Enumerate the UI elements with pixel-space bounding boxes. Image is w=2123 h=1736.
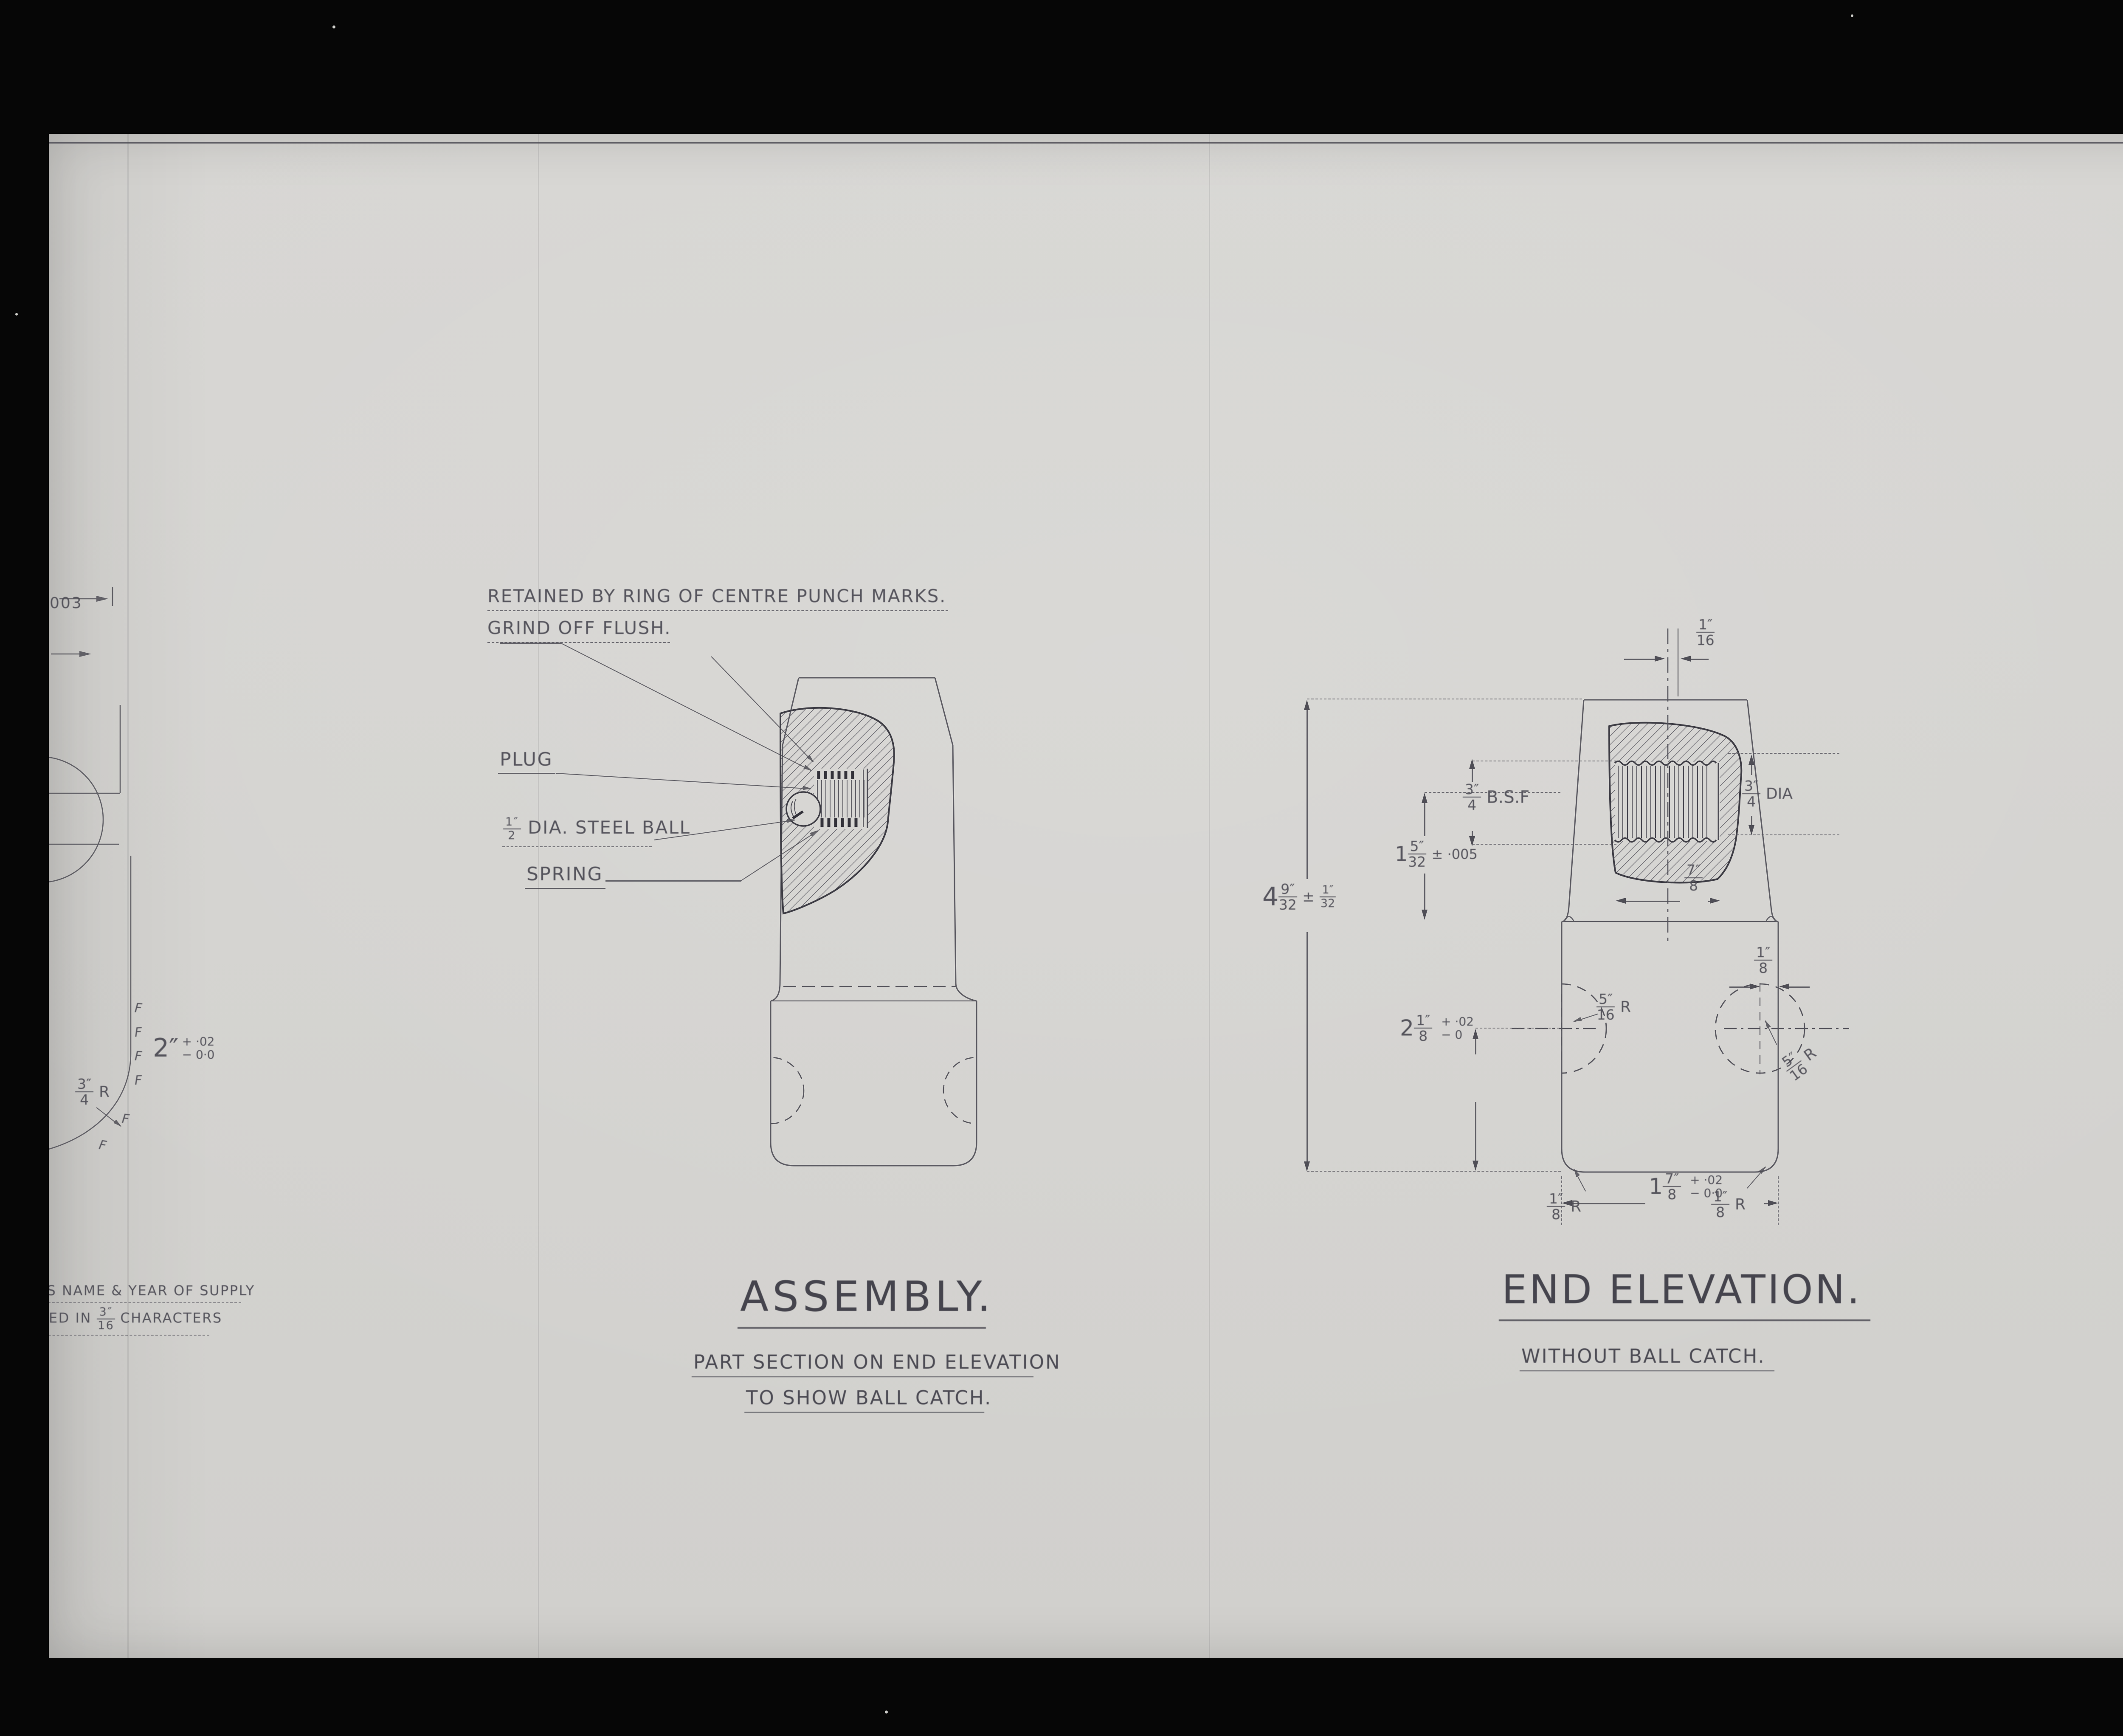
assembly-subtitle2: TO SHOW BALL CATCH. <box>746 1387 992 1409</box>
frac-den: 4 <box>1463 798 1481 812</box>
dim-arrow <box>1562 1200 1572 1206</box>
dim-line <box>1306 709 1308 879</box>
ball-text: DIA. STEEL BALL <box>528 817 690 838</box>
finish-mark: F <box>134 1073 142 1088</box>
dim-tol-minus: − 0 <box>1441 1028 1474 1041</box>
dim-line <box>1789 986 1810 988</box>
drawing-sheet: GIVEN A NEW. I.R.E.S Nº. OLD Nº WAS I.R.… <box>49 134 2123 1658</box>
dim-arrow <box>1779 984 1789 989</box>
end-elevation-title-underline <box>1499 1319 1870 1321</box>
dim-mid: 21″8 + ·02− 0 <box>1400 1014 1474 1043</box>
frac-den: 32 <box>1278 897 1297 911</box>
plug-underline <box>498 773 555 774</box>
end-elevation-sub-underline <box>1520 1370 1774 1371</box>
assembly-linework <box>720 635 1017 1208</box>
dim-arrow <box>1473 1161 1478 1171</box>
spring-leader-h <box>605 880 741 882</box>
dim-arrow <box>1422 910 1428 920</box>
finish-mark: F <box>134 1000 143 1016</box>
note-underline <box>49 1335 209 1336</box>
dim-line <box>1424 874 1425 910</box>
ext-line <box>1475 1028 1560 1029</box>
dim-arrow <box>1749 755 1754 765</box>
dim-arrow <box>1422 793 1428 803</box>
dim-tol-plus: + ·02 <box>182 1035 215 1048</box>
frac-den: 8 <box>1754 961 1772 975</box>
dim-overall: 49″32 ± 1″32 <box>1262 882 1336 912</box>
assembly-sub1-underline <box>692 1376 1033 1377</box>
end-elevation-subtitle: WITHOUT BALL CATCH. <box>1521 1345 1765 1367</box>
dim-line <box>1624 659 1655 660</box>
frac-den: 4 <box>75 1092 93 1106</box>
end-elevation-title: END ELEVATION. <box>1502 1267 1862 1313</box>
dim-pm: ± <box>1302 888 1315 905</box>
dim-bsf: 3″4 B.S.F <box>1463 783 1529 812</box>
fold-line <box>1209 134 1210 1658</box>
frame-top-border <box>49 142 2123 144</box>
frac-den: 8 <box>1711 1205 1729 1219</box>
dim-line <box>1751 816 1752 826</box>
frac-den: 8 <box>1663 1187 1681 1201</box>
dim-line <box>1691 659 1709 660</box>
steel-ball-label: 1″2 DIA. STEEL BALL <box>503 817 691 841</box>
radius-suffix: R <box>1571 1198 1581 1215</box>
dust-speck <box>885 1711 888 1713</box>
bore-tol: ± ·005 <box>1432 846 1478 862</box>
frac-num: 3″ <box>97 1307 115 1319</box>
assembly-title-underline <box>738 1327 986 1329</box>
left-dim-2in: 2″+ ·02− 0·0 <box>153 1033 214 1063</box>
fold-line <box>538 134 539 1658</box>
scanned-drawing-page: GIVEN A NEW. I.R.E.S Nº. OLD Nº WAS I.R.… <box>0 0 2123 1736</box>
dim-dia: 3″4 DIA <box>1742 779 1793 809</box>
ball-underline <box>502 846 652 847</box>
left-dim-003: 003 <box>50 595 83 612</box>
dim-line <box>1751 764 1752 775</box>
ext-line <box>1472 844 1616 845</box>
dim-width: 17″8 + ·02− 0·0 <box>1649 1172 1723 1201</box>
dim-arrow <box>1616 898 1626 904</box>
frac-den: 16 <box>97 1319 115 1331</box>
frac-num: 1″ <box>1414 1014 1432 1029</box>
assembly-note-line1: RETAINED BY RING OF CENTRE PUNCH MARKS. <box>487 586 946 606</box>
dim-corner-radius-left: 1″8 R <box>1547 1192 1581 1221</box>
end-elevation-linework <box>1509 609 1858 1212</box>
dim-tol-plus: + ·02 <box>1690 1173 1723 1186</box>
left-dim-radius: 3″4 R <box>75 1077 110 1107</box>
dim-arrow <box>1304 700 1310 710</box>
assembly-note-line2: GRIND OFF FLUSH. <box>487 617 671 638</box>
assembly-sub2-underline <box>744 1412 984 1413</box>
dim-arrow <box>1749 825 1754 835</box>
finish-mark: F <box>134 1049 142 1064</box>
dim-tol-minus: − 0·0 <box>182 1048 215 1061</box>
frac-num: 1″ <box>1754 946 1772 961</box>
note-underline <box>49 1302 241 1303</box>
dia-suffix: DIA <box>1766 785 1793 803</box>
frac-den: 2 <box>503 829 521 841</box>
ext-line <box>1425 792 1560 793</box>
frac-num: 3″ <box>1463 783 1481 798</box>
dim-line <box>1472 768 1473 782</box>
ext-line <box>1307 699 1582 699</box>
dim-line <box>1625 901 1680 902</box>
dim-arrow <box>1655 656 1665 662</box>
dim-side-radius-left: 5″16 R <box>1596 992 1631 1022</box>
dim-hole-offset: 1″8 <box>1754 946 1772 975</box>
frac-num: 1″ <box>1696 618 1715 633</box>
dim-whole: 4 <box>1262 882 1278 912</box>
bsf-suffix: B.S.F <box>1487 787 1529 807</box>
frac-den: 16 <box>1596 1007 1615 1021</box>
dim-whole: 1 <box>1649 1174 1663 1199</box>
frac-num: 5″ <box>1596 992 1615 1007</box>
assembly-subtitle1: PART SECTION ON END ELEVATION <box>693 1351 1061 1373</box>
frac-num: 5″ <box>1408 840 1426 854</box>
frac-den: 4 <box>1742 794 1760 808</box>
dim-whole: 2 <box>1400 1015 1414 1041</box>
dim-arrow <box>1750 984 1760 989</box>
dim-top-offset: 1″16 <box>1696 618 1715 647</box>
dim-bore: 15″32 ± ·005 <box>1395 840 1478 869</box>
dim-arrow <box>1710 898 1720 904</box>
dim-line <box>1306 932 1308 1162</box>
frac-num: 3″ <box>1742 779 1760 794</box>
frac-den: 32 <box>1408 854 1426 868</box>
note2-post: CHARACTERS <box>120 1310 222 1326</box>
dim-whole: 2″ <box>153 1033 179 1063</box>
frac-num: 7″ <box>1684 863 1703 878</box>
dim-line <box>1571 1203 1645 1204</box>
dim-arrow <box>1768 1200 1778 1206</box>
frac-den: 16 <box>1696 633 1715 647</box>
assembly-title: ASSEMBLY. <box>740 1273 994 1321</box>
dim-line <box>1475 1102 1476 1161</box>
assembly-note-underline <box>487 610 948 611</box>
frac-num: 7″ <box>1663 1172 1681 1187</box>
frac-num: 9″ <box>1278 882 1297 897</box>
dim-arrow <box>1304 1161 1310 1172</box>
plug-label: PLUG <box>500 749 553 770</box>
frac-den: 8 <box>1414 1029 1432 1043</box>
ext-line <box>1472 761 1616 761</box>
ext-line <box>1728 834 1839 835</box>
stamping-note-line2: MPED IN 3″16 CHARACTERS <box>49 1307 222 1331</box>
radius-suffix: R <box>99 1083 110 1101</box>
dim-tol-minus: − 0·0 <box>1690 1186 1723 1200</box>
dim-tol-plus: + ·02 <box>1441 1015 1474 1028</box>
dim-line <box>1475 1038 1476 1054</box>
note-leader-h <box>500 643 561 644</box>
dim-depth: 7″8 <box>1684 863 1703 893</box>
ext-line <box>1728 753 1839 754</box>
dim-whole: 1 <box>1395 842 1408 866</box>
finish-mark: F <box>121 1111 130 1127</box>
stamping-note-line1: ERS NAME & YEAR OF SUPPLY <box>49 1282 255 1299</box>
frac-num: 1″ <box>1320 885 1335 897</box>
dim-line <box>1424 802 1425 836</box>
dust-speck <box>332 25 335 28</box>
frac-num: 1″ <box>503 817 521 829</box>
frac-num: 3″ <box>75 1077 93 1092</box>
finish-mark: F <box>134 1025 142 1040</box>
spring-label: SPRING <box>527 863 603 885</box>
frac-den: 32 <box>1320 897 1335 909</box>
dust-speck <box>1851 14 1853 17</box>
note2-pre: MPED IN <box>49 1310 92 1326</box>
frac-den: 8 <box>1547 1207 1565 1221</box>
spring-underline <box>525 888 605 889</box>
dim-arrow <box>1681 656 1691 662</box>
dust-speck <box>15 313 18 316</box>
dim-line <box>1729 986 1751 988</box>
radius-suffix: R <box>1735 1196 1746 1213</box>
frac-den: 8 <box>1684 878 1703 892</box>
ext-line <box>1307 1171 1561 1172</box>
radius-suffix: R <box>1620 998 1631 1016</box>
